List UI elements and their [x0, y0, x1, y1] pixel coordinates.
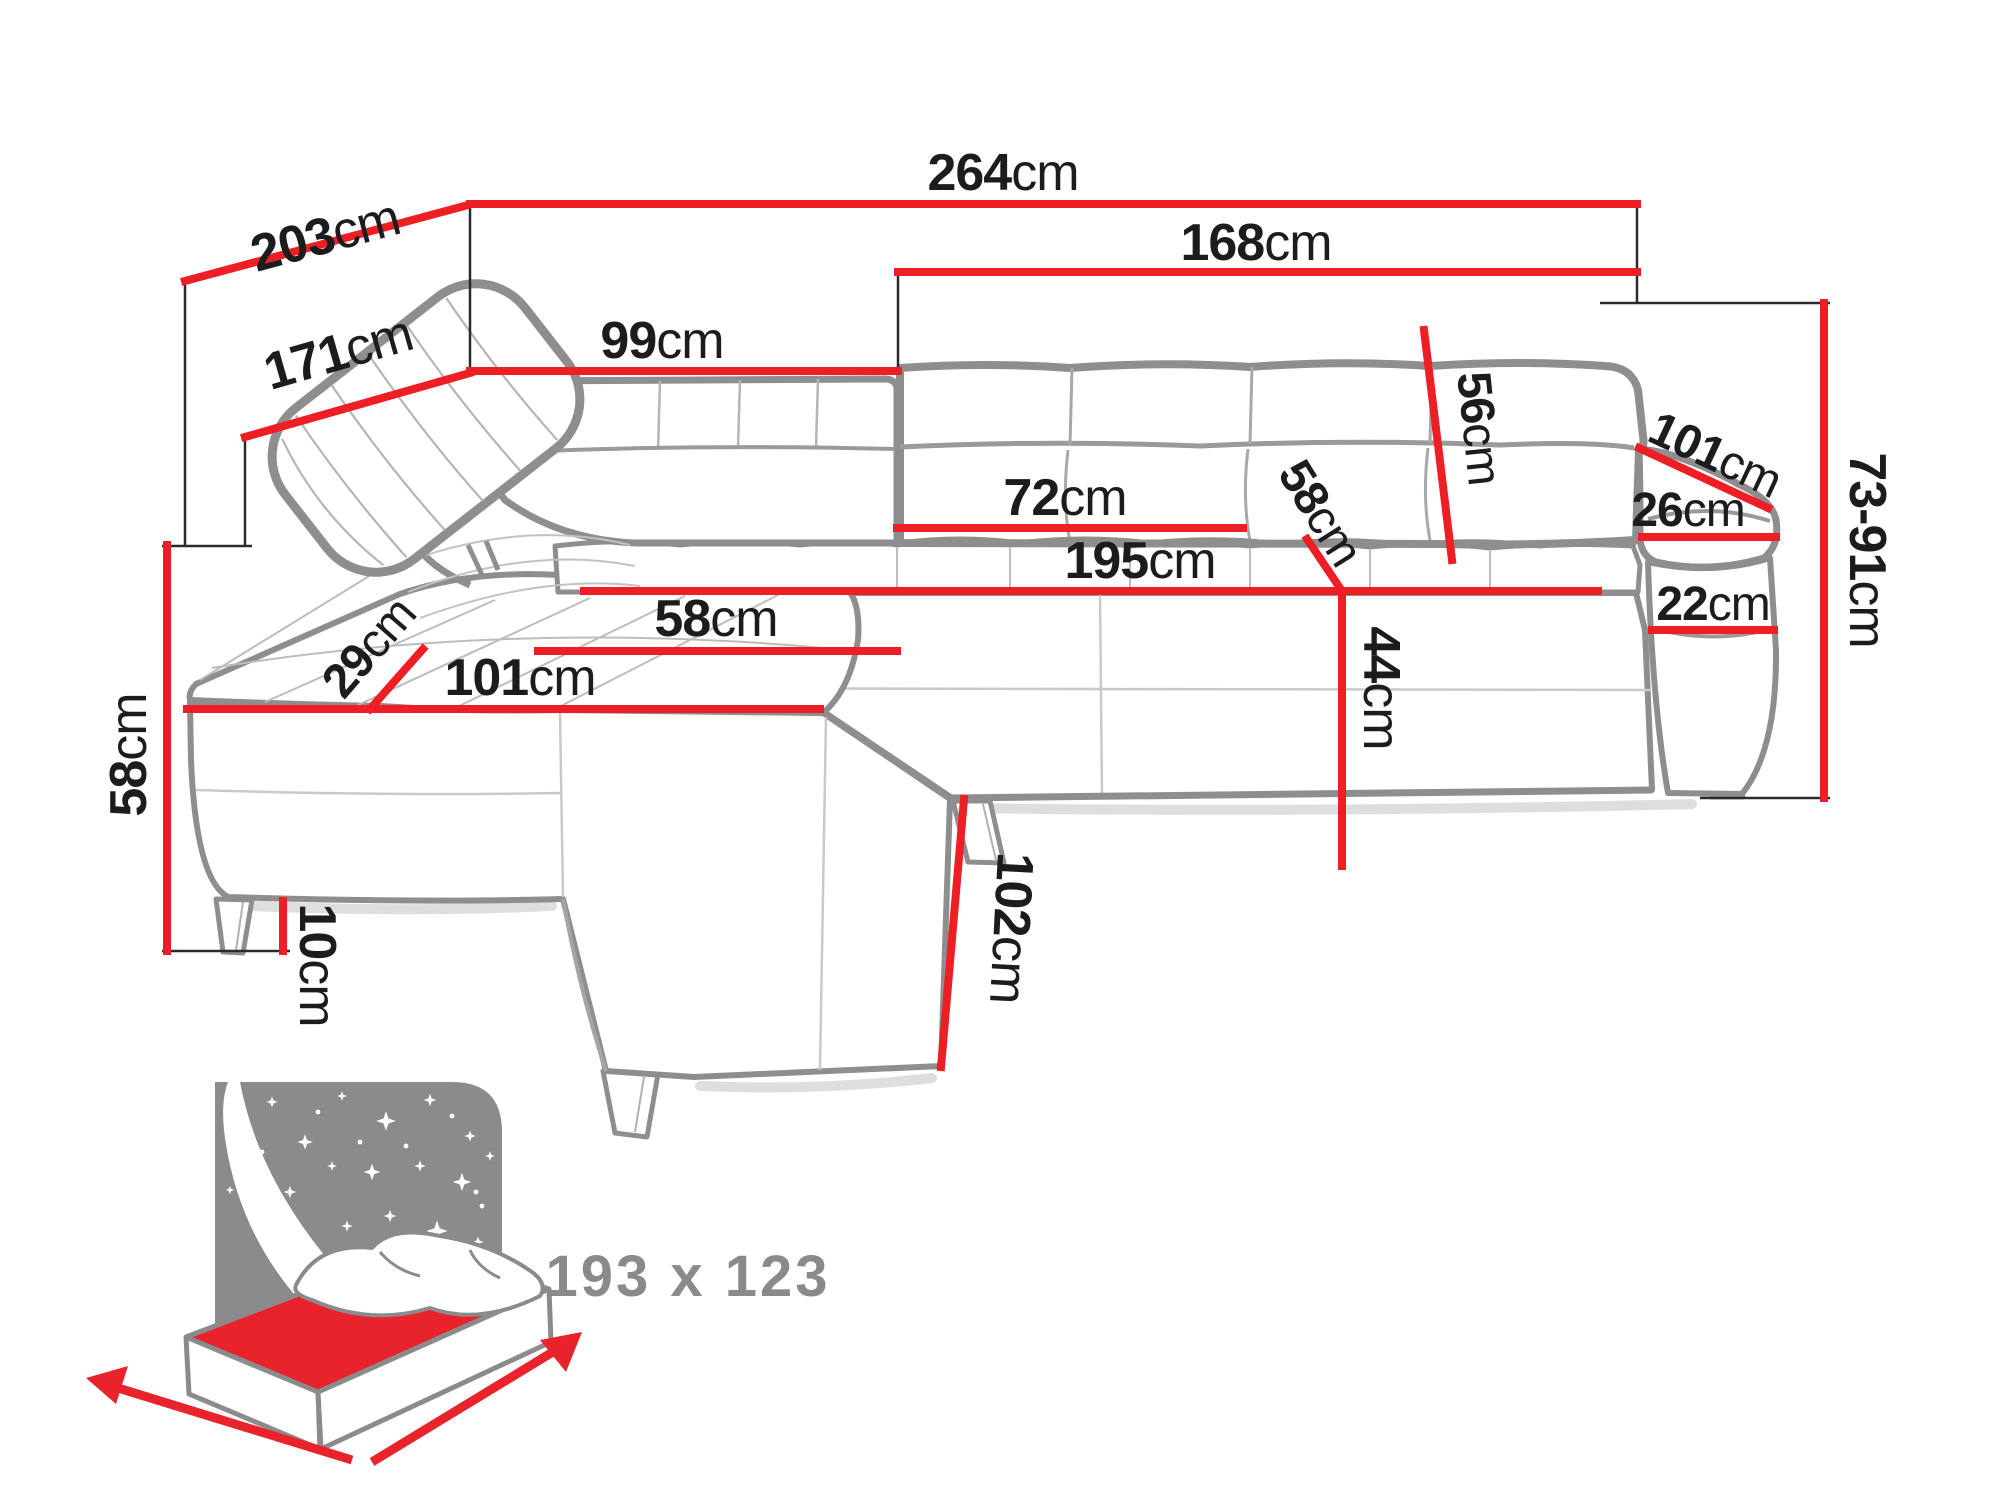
sleeping-area-label: 193 x 123 — [545, 1244, 830, 1309]
label-height-range: 73-91cm — [1838, 452, 1896, 647]
sofa-dimension-diagram: 264cm 203cm 171cm 99cm 168cm 56cm 101cm … — [0, 0, 2000, 1499]
label-armrest-top-width: 26cm — [1631, 484, 1744, 537]
label-main-back-width: 168cm — [1180, 214, 1331, 272]
arrow-head-left — [86, 1366, 128, 1404]
label-back-cushion-width: 72cm — [1003, 469, 1126, 527]
label-base-height: 58cm — [100, 693, 158, 816]
label-seat-height: 44cm — [1352, 626, 1410, 749]
headrest-cushion — [247, 259, 605, 597]
label-total-depth: 203cm — [245, 188, 406, 283]
label-chaise-back-width: 99cm — [600, 312, 723, 370]
label-chaise-seat-width: 58cm — [654, 590, 777, 648]
label-armrest-front-height: 22cm — [1656, 578, 1769, 631]
sofa-drawing — [190, 259, 1777, 1137]
diagram-svg: 264cm 203cm 171cm 99cm 168cm 56cm 101cm … — [0, 0, 2000, 1499]
label-total-width: 264cm — [927, 144, 1078, 202]
label-chaise-seat-length: 101cm — [444, 649, 595, 707]
label-chaise-total-depth: 102cm — [978, 851, 1044, 1005]
label-seat-length: 195cm — [1064, 532, 1215, 590]
sleeping-area-icon: 193 x 123 — [86, 1082, 831, 1462]
label-leg-height: 10cm — [288, 903, 346, 1026]
